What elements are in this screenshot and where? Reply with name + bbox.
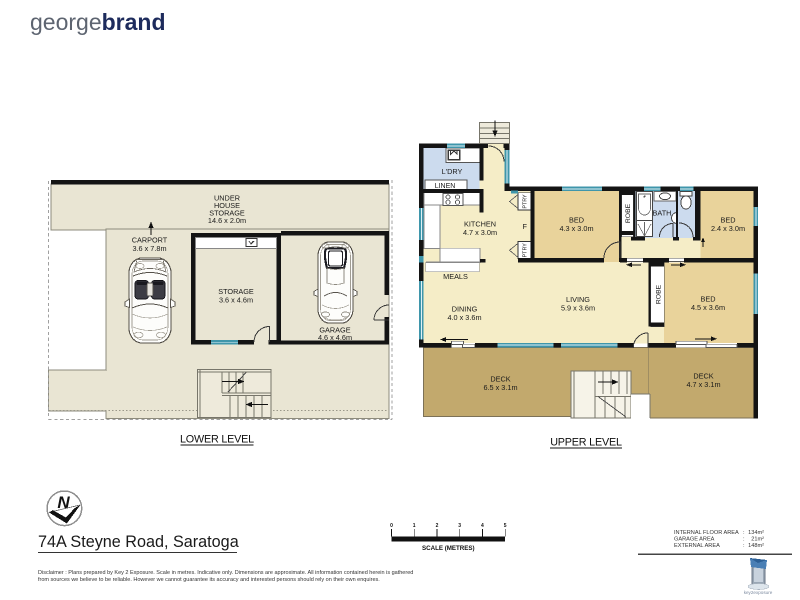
svg-text:3.6 x 4.6m: 3.6 x 4.6m [219,296,253,305]
svg-text:4.6 x 4.6m: 4.6 x 4.6m [318,333,352,342]
svg-text:EXTERNAL AREA: EXTERNAL AREA [674,543,720,549]
svg-text:148m²: 148m² [748,543,764,549]
svg-text:4.0 x 3.6m: 4.0 x 3.6m [447,313,481,322]
svg-text:PTRY: PTRY [523,243,529,258]
svg-text:ROBE: ROBE [656,284,663,304]
svg-text:21m²: 21m² [751,537,764,543]
svg-text:2: 2 [436,523,439,529]
svg-text:L'DRY: L'DRY [442,167,463,176]
svg-text:4.5 x 3.6m: 4.5 x 3.6m [691,303,725,312]
svg-text:MEALS: MEALS [443,272,468,281]
svg-text:UPPER LEVEL: UPPER LEVEL [550,437,622,449]
svg-text:BATH: BATH [653,209,672,218]
svg-text:5: 5 [504,523,507,529]
svg-text:GARAGE AREA: GARAGE AREA [674,537,715,543]
svg-text:0: 0 [390,523,393,529]
svg-text:key2exposure: key2exposure [744,590,773,595]
svg-text:14.6 x 2.0m: 14.6 x 2.0m [208,216,246,225]
svg-text:SCALE (METRES): SCALE (METRES) [422,545,475,552]
svg-text:6.5 x 3.1m: 6.5 x 3.1m [483,383,517,392]
svg-text:F: F [522,222,527,231]
svg-text:3: 3 [458,523,461,529]
svg-text:74A Steyne Road, Saratoga: 74A Steyne Road, Saratoga [38,533,239,551]
svg-text:LOWER LEVEL: LOWER LEVEL [180,434,254,446]
svg-text:ROBE: ROBE [625,203,632,223]
svg-text:Disclaimer : Plans prepared by: Disclaimer : Plans prepared by Key 2 Exp… [38,570,413,576]
svg-text:1: 1 [413,523,416,529]
svg-text:PTRY: PTRY [523,194,529,209]
svg-text:4: 4 [481,523,484,529]
svg-text:LINEN: LINEN [435,183,456,190]
svg-text:from sources we believe to be: from sources we believe to be reliable. … [38,577,380,583]
svg-text:4.7 x 3.1m: 4.7 x 3.1m [686,380,720,389]
svg-text:3.6 x 7.8m: 3.6 x 7.8m [132,244,166,253]
svg-text:INTERNAL FLOOR AREA: INTERNAL FLOOR AREA [674,530,739,536]
svg-text:134m²: 134m² [748,530,764,536]
svg-text:4.7 x 3.0m: 4.7 x 3.0m [463,228,497,237]
svg-text:4.3 x 3.0m: 4.3 x 3.0m [559,224,593,233]
svg-text:5.9 x 3.6m: 5.9 x 3.6m [561,304,595,313]
svg-text:georgebrand: georgebrand [30,9,166,35]
svg-text:2.4 x 3.0m: 2.4 x 3.0m [711,224,745,233]
